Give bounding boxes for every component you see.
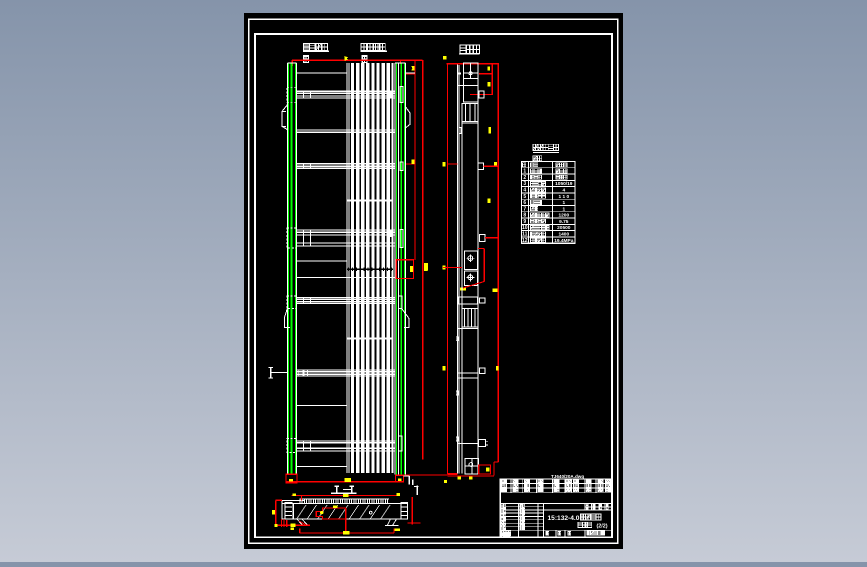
svg-text:1200: 1200 [558, 213, 569, 219]
svg-text:1: 1 [562, 206, 565, 212]
svg-text:1: 1 [562, 200, 565, 206]
svg-text:2: 2 [523, 175, 526, 181]
svg-text:20500: 20500 [557, 225, 571, 231]
svg-text:1 1 0: 1 1 0 [558, 194, 569, 200]
svg-text:4: 4 [523, 188, 526, 194]
svg-text:6: 6 [523, 200, 526, 206]
svg-text:1: 1 [523, 169, 526, 175]
svg-text:8: 8 [523, 213, 526, 219]
svg-text:11: 11 [522, 232, 528, 238]
svg-text:3: 3 [523, 181, 526, 187]
svg-text:(2/2): (2/2) [597, 524, 608, 530]
svg-text:4: 4 [562, 188, 565, 194]
svg-text:9.75: 9.75 [559, 219, 569, 225]
svg-text:1400: 1400 [558, 232, 569, 238]
svg-text:19.4MPa: 19.4MPa [554, 238, 574, 244]
svg-text:7: 7 [523, 206, 526, 212]
svg-text:10: 10 [522, 225, 528, 231]
svg-text:12: 12 [522, 238, 528, 244]
svg-text:5: 5 [523, 194, 526, 200]
svg-text:1050/19: 1050/19 [555, 181, 573, 187]
svg-text:15:132-4.0: 15:132-4.0 [548, 515, 580, 522]
svg-text:9: 9 [523, 219, 526, 225]
